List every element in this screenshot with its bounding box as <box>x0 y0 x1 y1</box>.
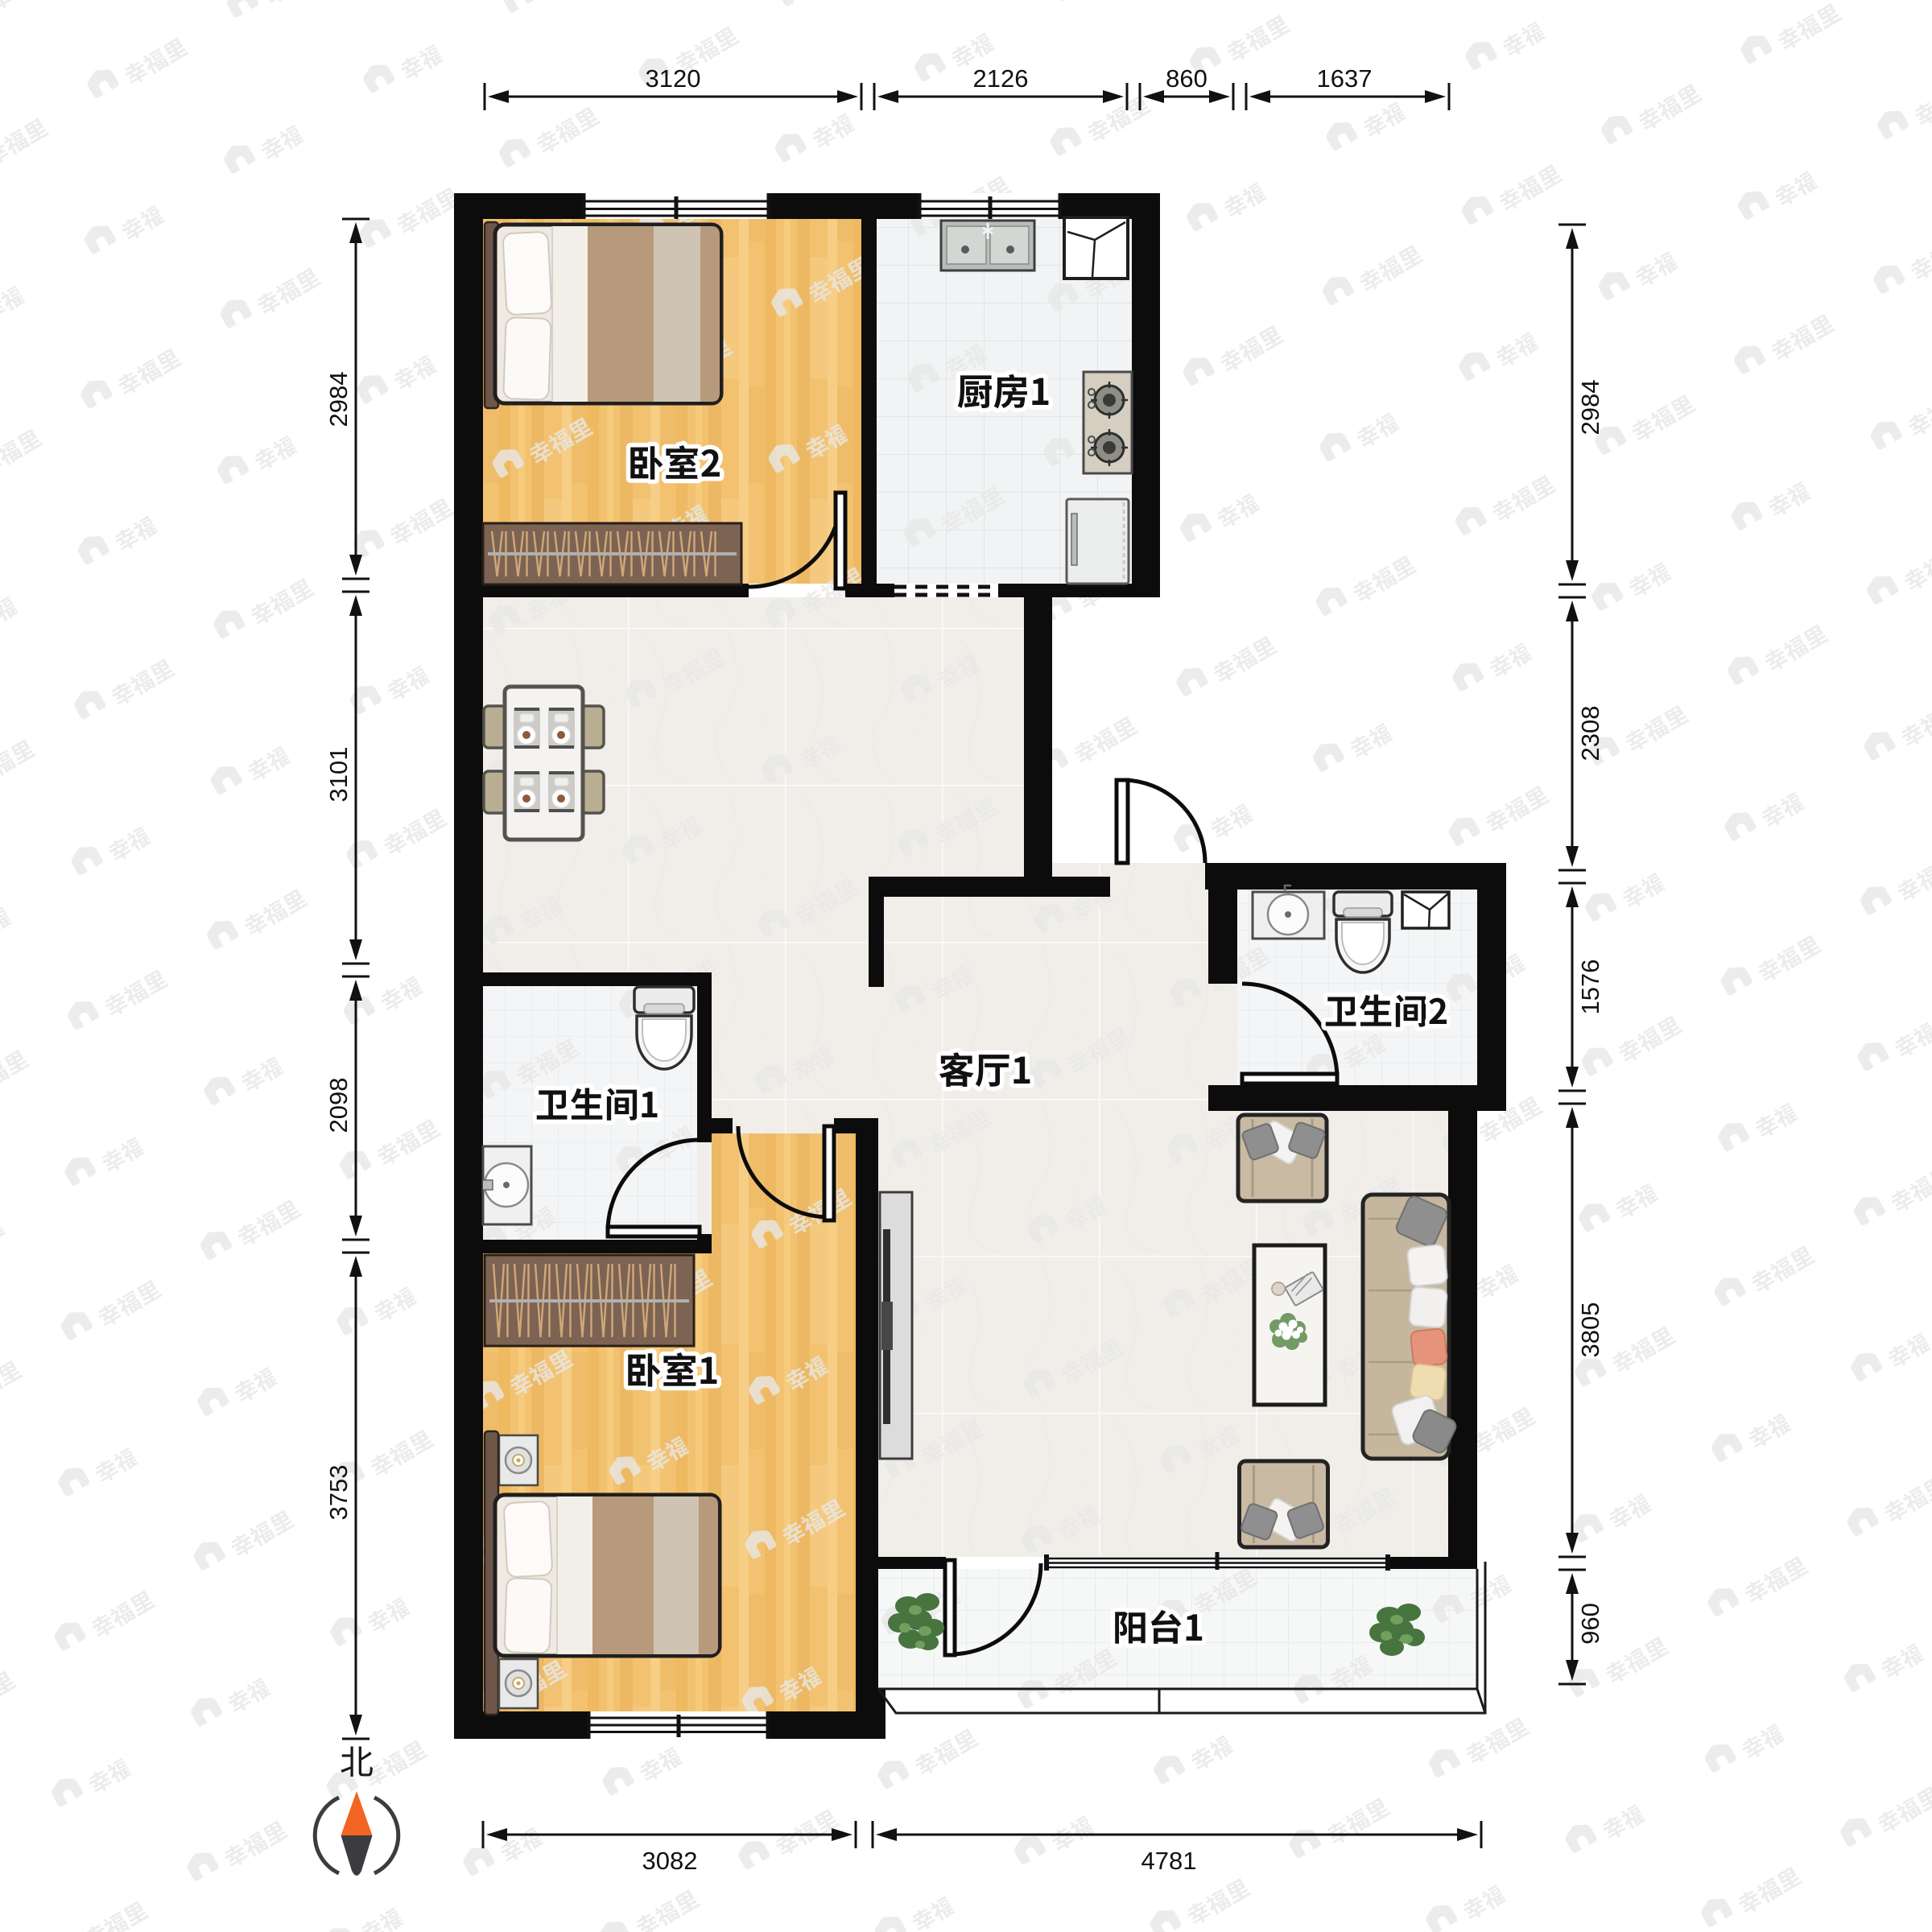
svg-text:1637: 1637 <box>1317 64 1373 93</box>
svg-text:1576: 1576 <box>1576 960 1604 1015</box>
svg-text:2984: 2984 <box>324 372 353 427</box>
svg-text:3101: 3101 <box>324 747 353 803</box>
svg-text:960: 960 <box>1576 1603 1604 1645</box>
svg-text:3082: 3082 <box>642 1847 698 1875</box>
svg-text:4781: 4781 <box>1141 1847 1197 1875</box>
svg-text:2984: 2984 <box>1576 380 1604 436</box>
svg-text:3120: 3120 <box>646 64 701 93</box>
svg-text:2098: 2098 <box>324 1078 353 1133</box>
svg-text:3805: 3805 <box>1576 1302 1604 1358</box>
svg-text:2126: 2126 <box>973 64 1029 93</box>
svg-text:2308: 2308 <box>1576 706 1604 762</box>
svg-text:3753: 3753 <box>324 1465 353 1521</box>
svg-text:860: 860 <box>1166 64 1207 93</box>
